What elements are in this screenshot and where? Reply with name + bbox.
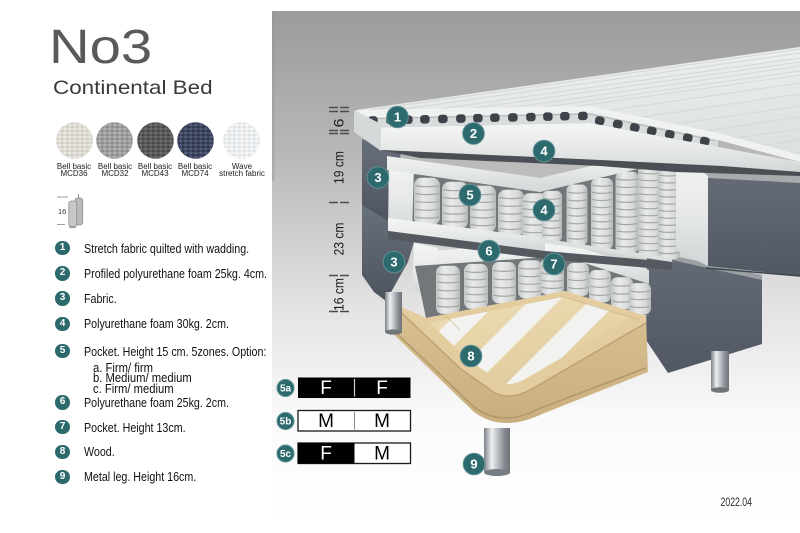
svg-text:9: 9 — [470, 457, 477, 472]
svg-text:4: 4 — [540, 203, 548, 218]
svg-text:3: 3 — [374, 170, 381, 185]
svg-text:5b: 5b — [280, 417, 292, 428]
svg-text:6: 6 — [485, 244, 492, 259]
svg-text:5a: 5a — [280, 384, 292, 395]
svg-text:23 cm: 23 cm — [332, 223, 347, 256]
svg-text:19 cm: 19 cm — [332, 151, 347, 184]
svg-text:F: F — [320, 444, 332, 465]
svg-text:M: M — [374, 411, 390, 432]
svg-text:F: F — [376, 378, 388, 399]
svg-text:6: 6 — [332, 119, 347, 128]
svg-text:2022.04: 2022.04 — [721, 497, 753, 509]
svg-text:2: 2 — [470, 126, 477, 141]
svg-text:5c: 5c — [280, 449, 292, 460]
svg-text:8: 8 — [467, 349, 474, 364]
svg-text:16 cm: 16 cm — [332, 278, 347, 311]
svg-text:M: M — [318, 411, 334, 432]
svg-text:1: 1 — [394, 110, 401, 125]
svg-text:7: 7 — [550, 257, 557, 272]
svg-text:16: 16 — [58, 207, 66, 216]
svg-text:5: 5 — [466, 188, 473, 203]
svg-text:4: 4 — [540, 144, 548, 159]
svg-text:3: 3 — [390, 255, 397, 270]
svg-text:M: M — [374, 444, 390, 465]
svg-text:F: F — [320, 378, 332, 399]
